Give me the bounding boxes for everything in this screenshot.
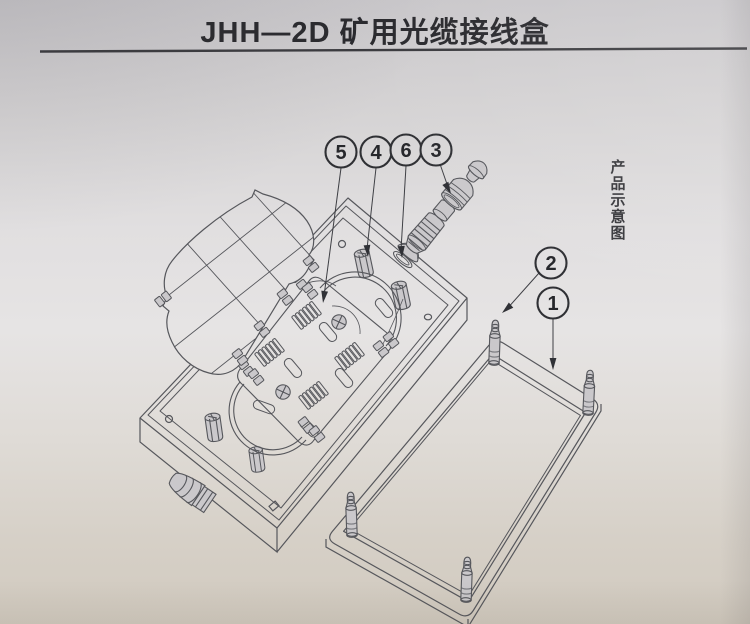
callout-1: 1: [538, 288, 569, 319]
callout-number-1: 1: [547, 293, 558, 315]
page-title: JHH—2D 矿用光缆接线盒: [0, 9, 750, 51]
standoff-post: [248, 446, 265, 473]
arrowhead-1: [550, 358, 557, 370]
photographed-product-sheet: JHH—2D 矿用光缆接线盒 产品示意图: [0, 0, 750, 624]
cover-screw: [345, 492, 357, 537]
standoff-post: [205, 412, 224, 442]
leader-6: [401, 166, 406, 250]
callout-3: 3: [421, 135, 452, 166]
callout-number-3: 3: [430, 140, 441, 162]
callout-4: 4: [361, 137, 392, 168]
callout-number-5: 5: [335, 142, 346, 164]
callout-5: 5: [326, 137, 357, 168]
callout-number-6: 6: [400, 140, 411, 162]
callout-number-4: 4: [370, 142, 382, 164]
side-cable-gland: [165, 468, 217, 514]
callout-2: 2: [536, 248, 567, 279]
exploded-assembly-diagram: 5 4 6 3 2 1: [0, 0, 750, 624]
side-caption-vertical: 产品示意图: [608, 159, 625, 242]
cover-screw: [489, 320, 501, 365]
leader-2: [506, 273, 539, 310]
cover-screw: [583, 370, 596, 416]
callout-6: 6: [391, 135, 422, 166]
callout-number-2: 2: [545, 253, 556, 275]
